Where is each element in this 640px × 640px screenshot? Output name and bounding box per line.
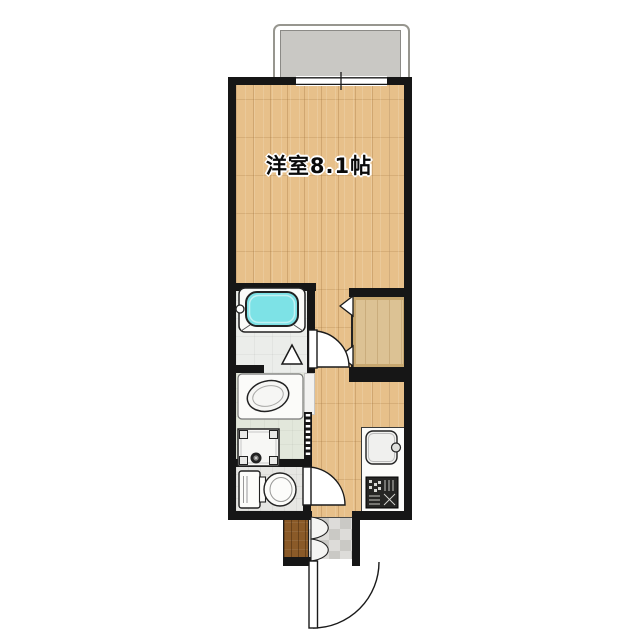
- bathtub: [236, 288, 305, 332]
- toilet-door: [303, 467, 345, 505]
- front-door: [309, 561, 379, 628]
- room-door: [309, 330, 350, 368]
- floor-plan: 洋室8.1帖: [0, 0, 640, 640]
- kitchen-sink: [366, 431, 401, 464]
- bathtub-faucet-icon: [236, 305, 244, 313]
- entrance-inner-doors: [311, 517, 328, 561]
- accordion-door: [304, 412, 312, 460]
- window-frame-icon: [296, 72, 387, 90]
- washing-machine-pan: [238, 429, 279, 466]
- gas-stove: [366, 477, 398, 508]
- bathroom-folding-door: [282, 345, 302, 364]
- faucet-icon: [392, 443, 401, 452]
- toilet: [239, 471, 296, 508]
- fixtures-layer: [0, 0, 640, 640]
- washbasin: [238, 374, 303, 419]
